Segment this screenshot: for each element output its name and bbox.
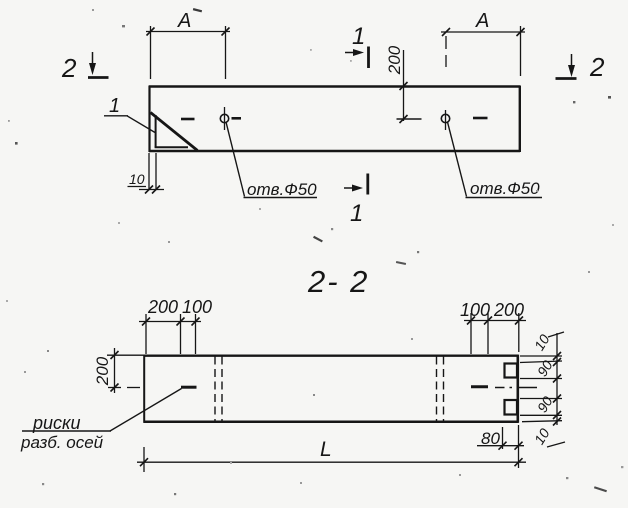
svg-text:разб. осей: разб. осей <box>20 433 104 452</box>
svg-text:L: L <box>320 438 332 461</box>
svg-text:100: 100 <box>460 300 490 320</box>
svg-text:80: 80 <box>481 429 500 448</box>
svg-text:200: 200 <box>493 300 524 320</box>
svg-text:10: 10 <box>129 171 145 187</box>
svg-text:отв.Ф50: отв.Ф50 <box>470 179 540 198</box>
svg-text:200: 200 <box>147 297 178 317</box>
svg-text:2- 2: 2- 2 <box>307 264 369 299</box>
svg-text:A: A <box>475 10 489 32</box>
svg-text:2: 2 <box>589 52 605 82</box>
svg-text:A: A <box>177 10 191 32</box>
svg-text:200: 200 <box>93 356 112 386</box>
svg-text:1: 1 <box>109 95 120 117</box>
svg-text:2: 2 <box>61 53 77 83</box>
svg-text:100: 100 <box>182 297 212 317</box>
svg-text:риски: риски <box>32 413 81 433</box>
svg-text:1: 1 <box>352 23 365 50</box>
svg-text:1: 1 <box>350 200 363 227</box>
svg-text:200: 200 <box>385 45 404 75</box>
svg-text:отв.Ф50: отв.Ф50 <box>247 180 317 199</box>
